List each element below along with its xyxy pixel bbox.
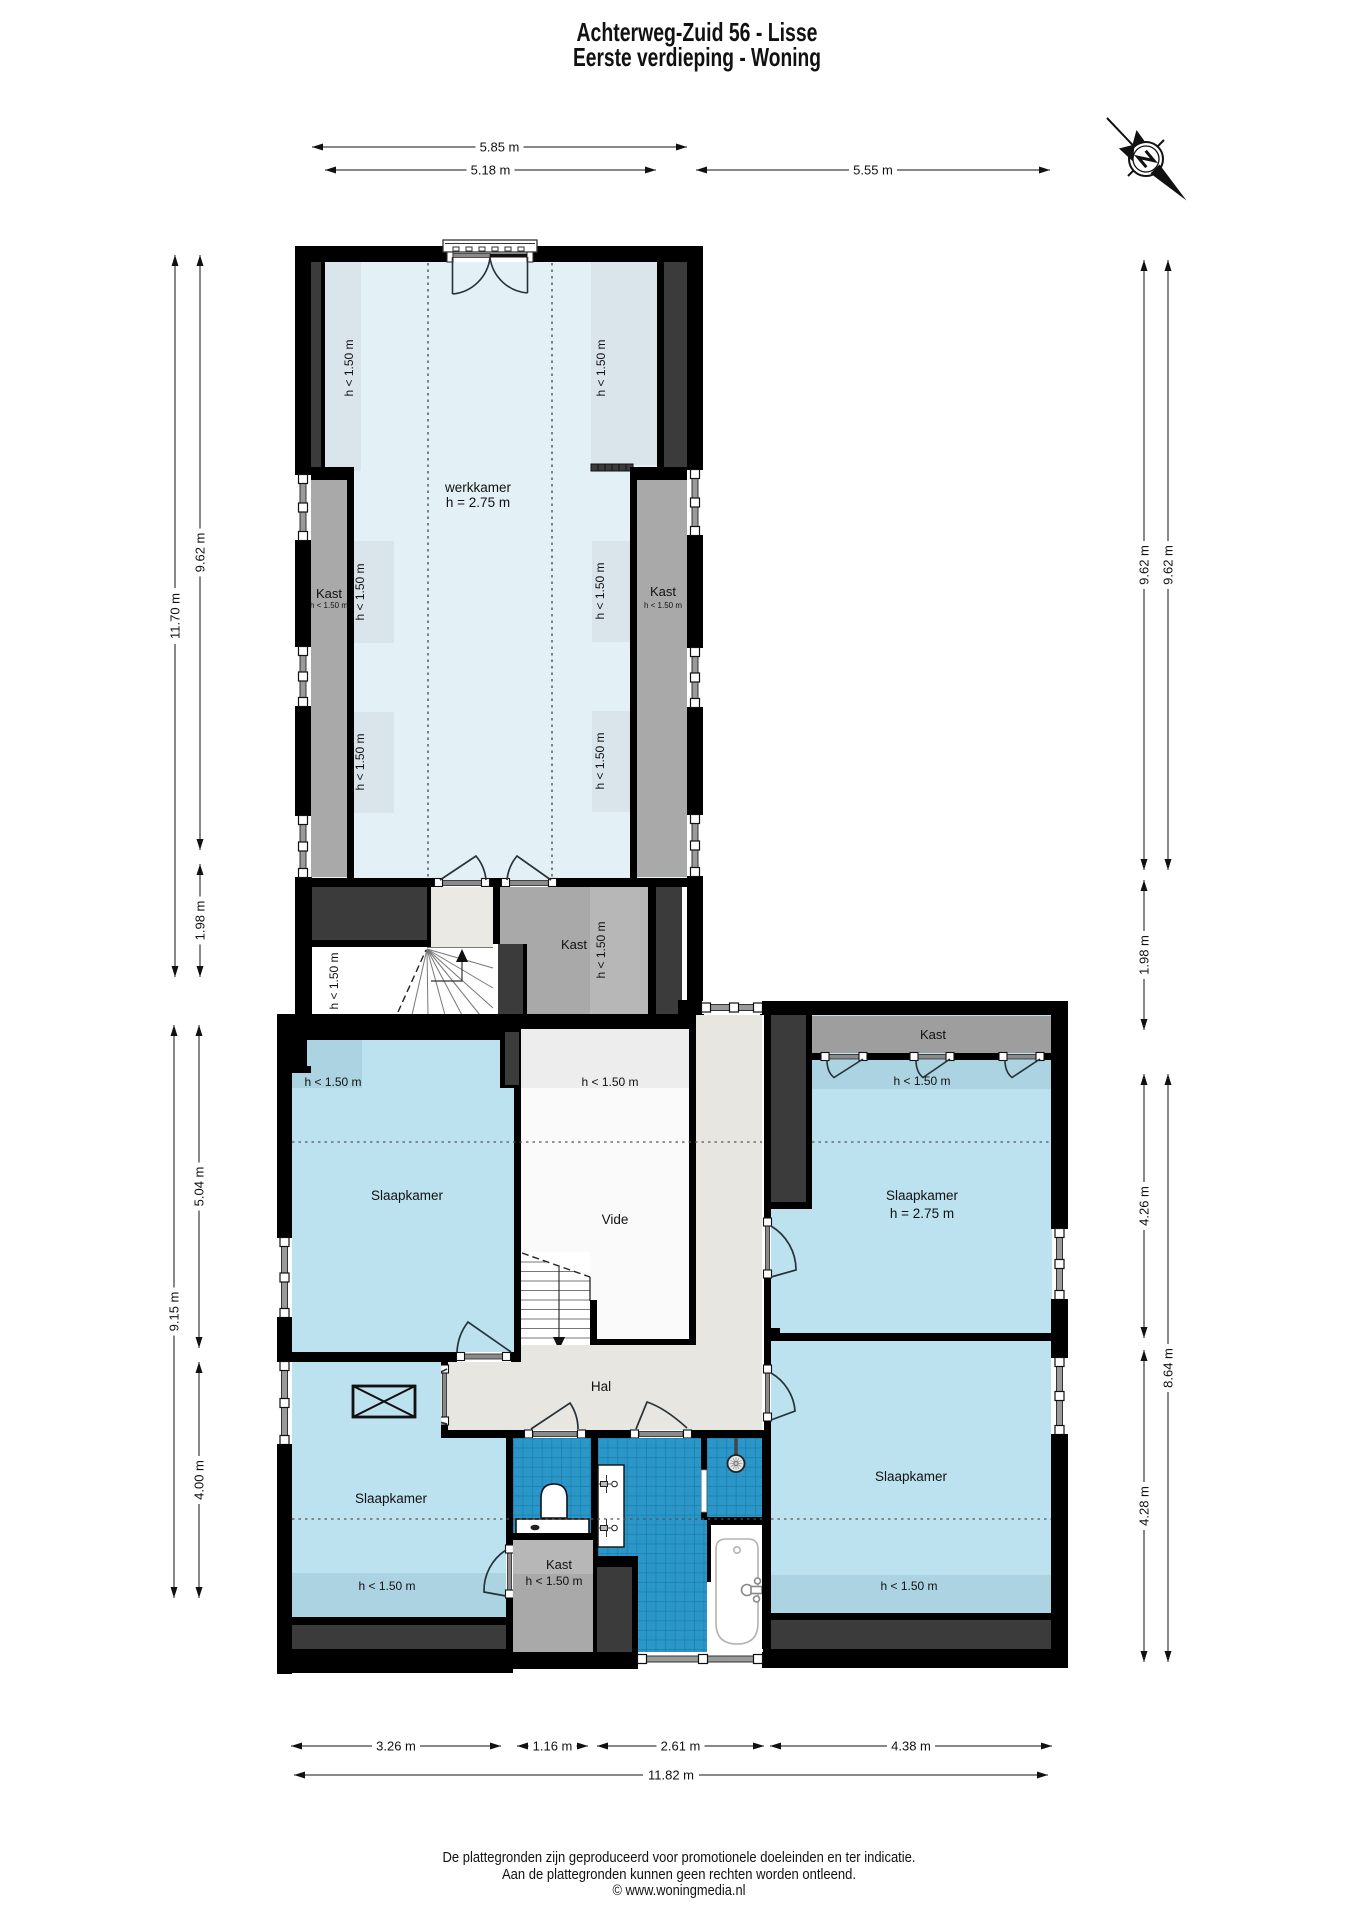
svg-text:1.16 m: 1.16 m — [533, 1739, 573, 1754]
svg-text:Eerste verdieping - Woning: Eerste verdieping - Woning — [573, 42, 821, 72]
svg-text:h = 2.75 m: h = 2.75 m — [890, 1206, 954, 1221]
svg-text:11.70 m: 11.70 m — [168, 593, 183, 639]
svg-text:h < 1.50 m: h < 1.50 m — [581, 1075, 638, 1089]
svg-text:4.38 m: 4.38 m — [891, 1739, 931, 1754]
svg-text:h < 1.50 m: h < 1.50 m — [594, 921, 608, 978]
svg-text:h < 1.50 m: h < 1.50 m — [310, 601, 348, 610]
svg-text:9.62 m: 9.62 m — [1161, 545, 1176, 585]
svg-text:9.62 m: 9.62 m — [1137, 545, 1152, 585]
svg-text:4.26 m: 4.26 m — [1137, 1186, 1152, 1226]
svg-text:9.15 m: 9.15 m — [167, 1292, 182, 1332]
svg-text:h < 1.50 m: h < 1.50 m — [593, 562, 607, 619]
svg-text:Kast: Kast — [561, 937, 587, 952]
svg-text:h < 1.50 m: h < 1.50 m — [327, 952, 341, 1009]
svg-text:Slaapkamer: Slaapkamer — [875, 1469, 948, 1484]
svg-text:1.98 m: 1.98 m — [193, 901, 208, 941]
svg-text:h < 1.50 m: h < 1.50 m — [525, 1574, 582, 1588]
svg-text:4.28 m: 4.28 m — [1137, 1486, 1152, 1526]
svg-text:h < 1.50 m: h < 1.50 m — [644, 601, 682, 610]
svg-text:h < 1.50 m: h < 1.50 m — [342, 339, 356, 396]
svg-text:Vide: Vide — [602, 1212, 629, 1227]
svg-text:h < 1.50 m: h < 1.50 m — [880, 1579, 937, 1593]
svg-text:5.04 m: 5.04 m — [192, 1167, 207, 1207]
svg-text:Kast: Kast — [920, 1027, 946, 1042]
svg-text:Kast: Kast — [650, 584, 676, 599]
svg-text:1.98 m: 1.98 m — [1137, 935, 1152, 975]
svg-text:Aan de plattegronden kunnen ge: Aan de plattegronden kunnen geen rechten… — [502, 1867, 856, 1883]
svg-text:Slaapkamer: Slaapkamer — [355, 1491, 428, 1506]
svg-text:2.61 m: 2.61 m — [661, 1739, 701, 1754]
svg-text:5.55 m: 5.55 m — [853, 163, 893, 178]
svg-text:5.18 m: 5.18 m — [471, 163, 511, 178]
svg-text:h < 1.50 m: h < 1.50 m — [353, 733, 367, 790]
svg-text:8.64 m: 8.64 m — [1161, 1348, 1176, 1388]
svg-text:h < 1.50 m: h < 1.50 m — [593, 732, 607, 789]
svg-text:h < 1.50 m: h < 1.50 m — [304, 1075, 361, 1089]
svg-text:Slaapkamer: Slaapkamer — [886, 1188, 959, 1203]
svg-text:h < 1.50 m: h < 1.50 m — [594, 339, 608, 396]
svg-text:h < 1.50 m: h < 1.50 m — [353, 563, 367, 620]
svg-text:Hal: Hal — [591, 1379, 611, 1394]
svg-text:4.00 m: 4.00 m — [192, 1460, 207, 1500]
svg-text:h = 2.75 m: h = 2.75 m — [446, 495, 510, 510]
svg-text:Slaapkamer: Slaapkamer — [371, 1188, 444, 1203]
svg-text:Kast: Kast — [546, 1557, 572, 1572]
svg-text:© www.woningmedia.nl: © www.woningmedia.nl — [613, 1883, 746, 1899]
svg-text:h < 1.50 m: h < 1.50 m — [358, 1579, 415, 1593]
svg-text:De plattegronden zijn geproduc: De plattegronden zijn geproduceerd voor … — [443, 1850, 916, 1866]
svg-text:9.62 m: 9.62 m — [193, 533, 208, 573]
svg-text:3.26 m: 3.26 m — [376, 1739, 416, 1754]
svg-text:werkkamer: werkkamer — [444, 480, 512, 495]
svg-text:Kast: Kast — [316, 586, 342, 601]
svg-text:11.82 m: 11.82 m — [648, 1768, 694, 1783]
svg-text:5.85 m: 5.85 m — [480, 140, 520, 155]
